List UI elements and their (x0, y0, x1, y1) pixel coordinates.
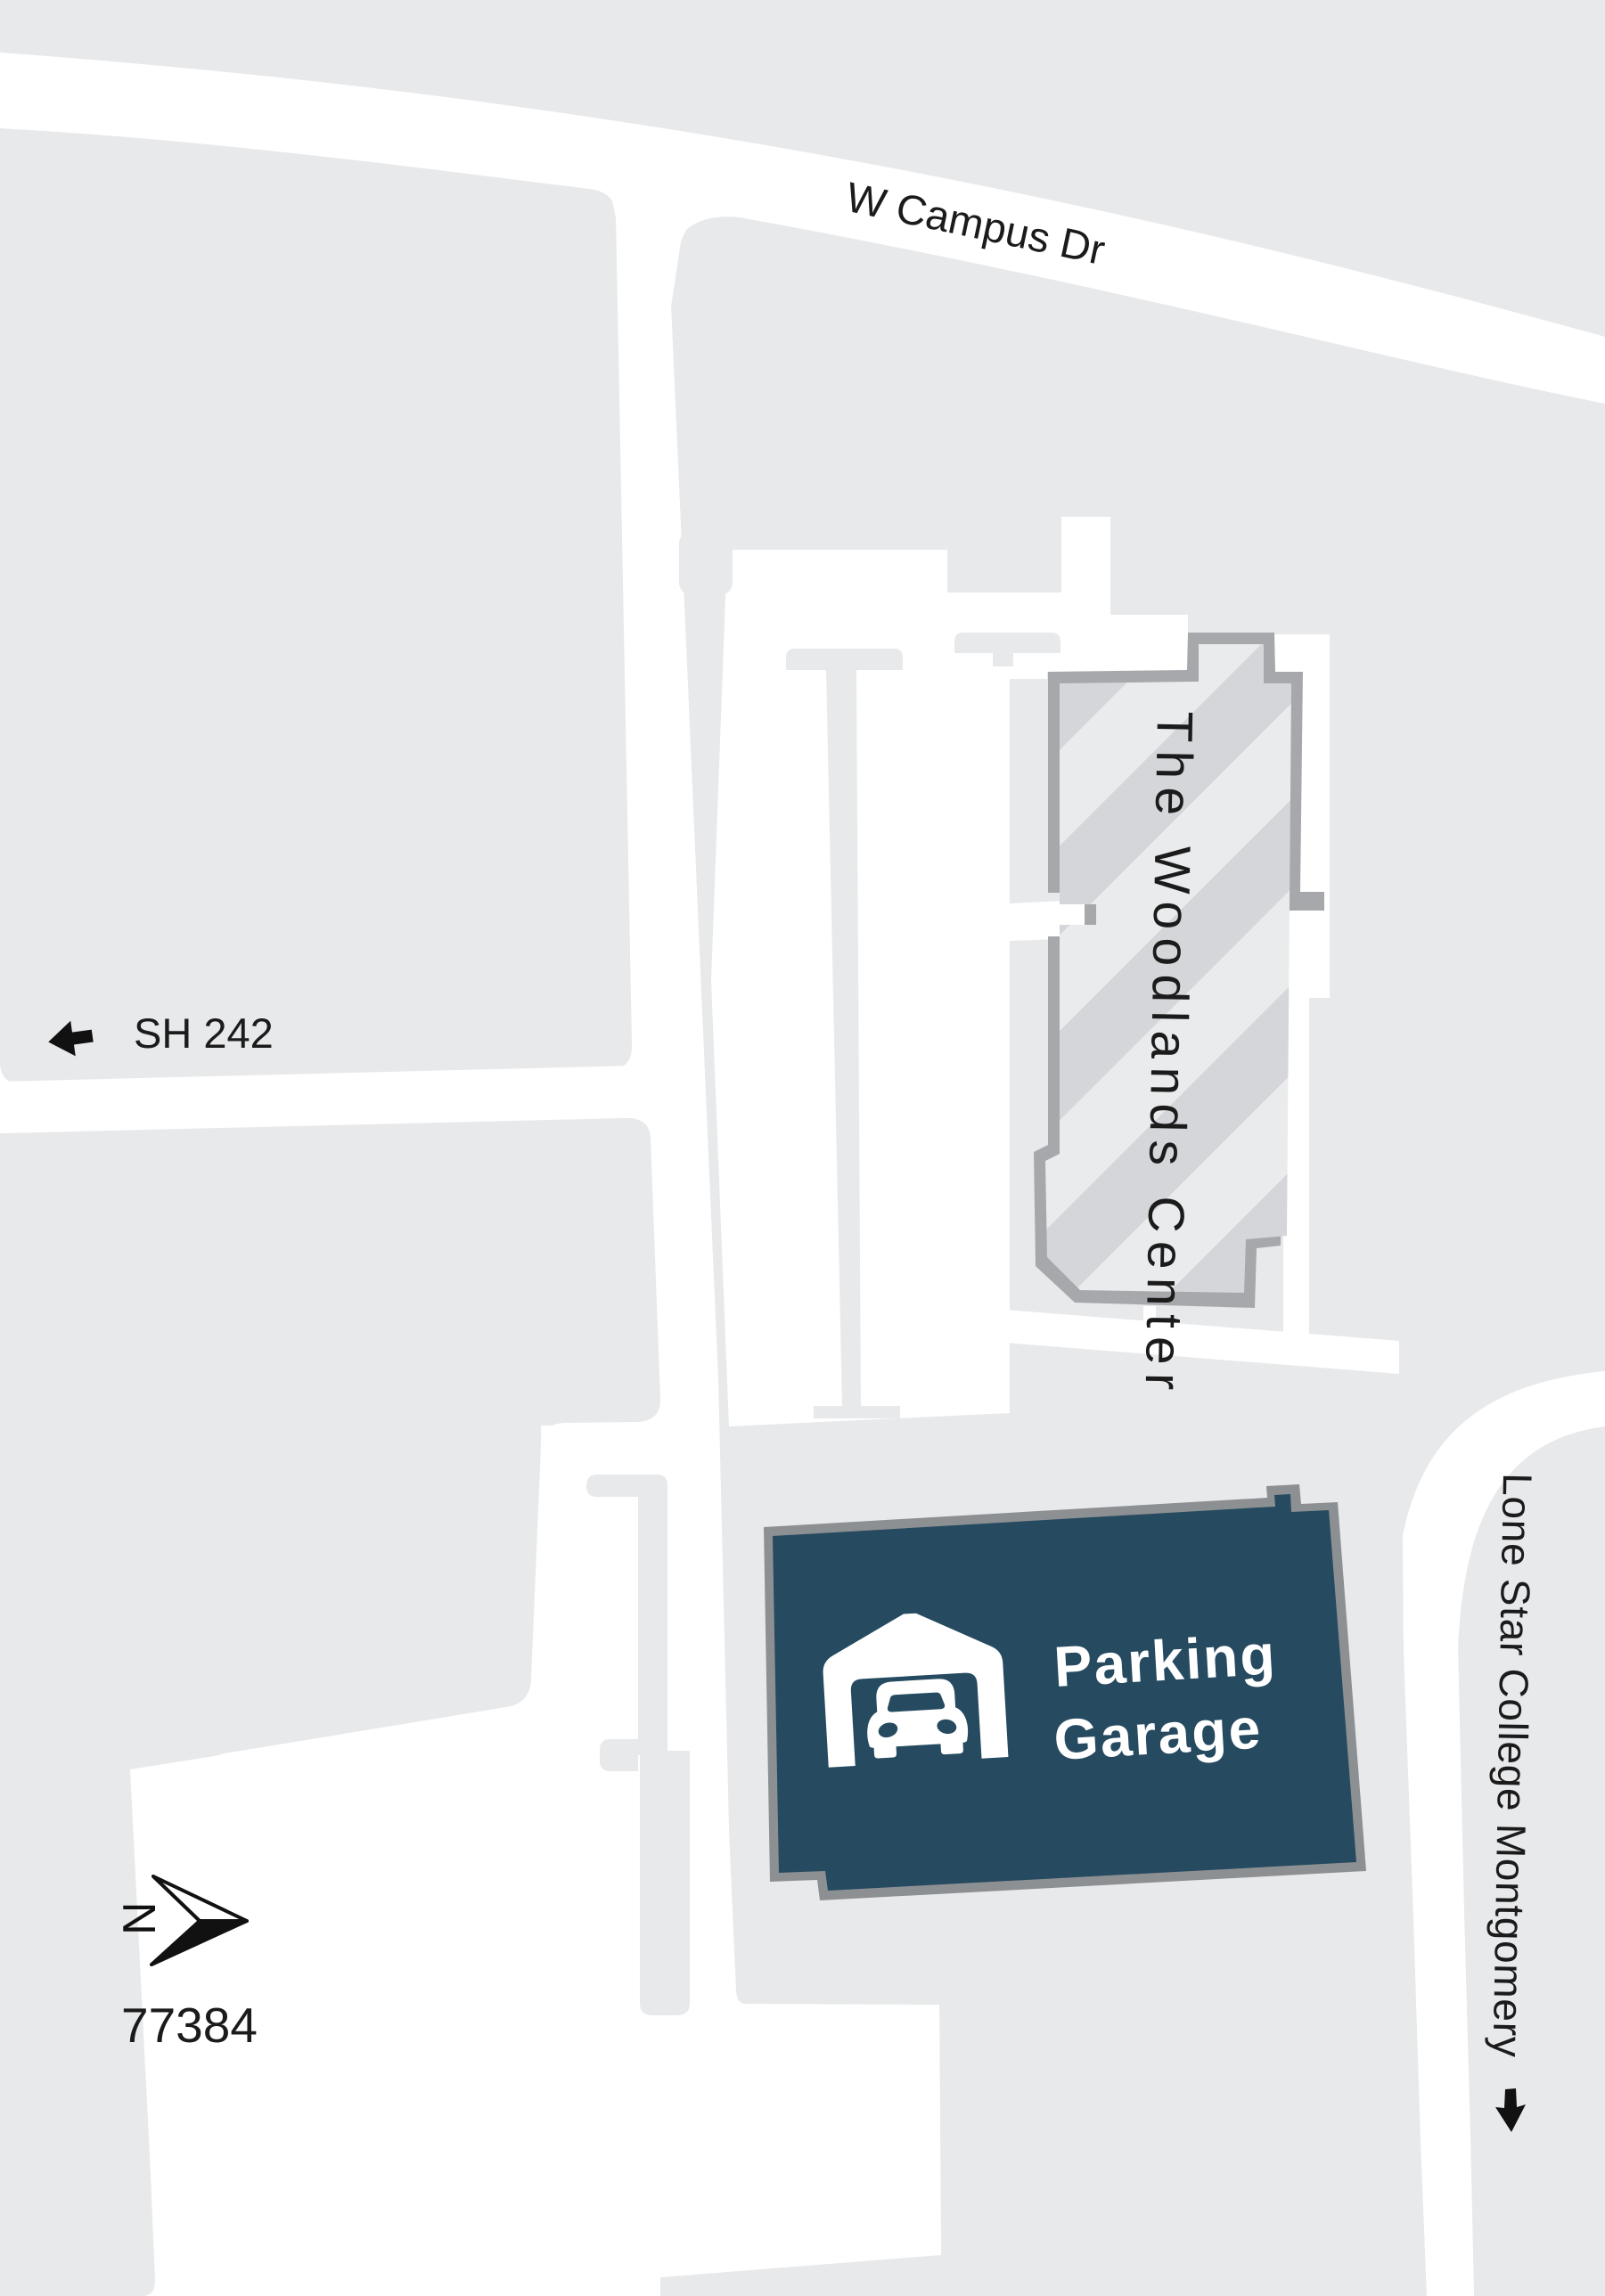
svg-text:Parking: Parking (1052, 1622, 1279, 1699)
svg-text:Garage: Garage (1052, 1695, 1265, 1771)
svg-text:SH 242: SH 242 (134, 1009, 274, 1057)
svg-text:77384: 77384 (121, 1998, 258, 2053)
svg-text:N: N (114, 1901, 166, 1935)
svg-text:The Woodlands Center: The Woodlands Center (1134, 711, 1203, 1399)
